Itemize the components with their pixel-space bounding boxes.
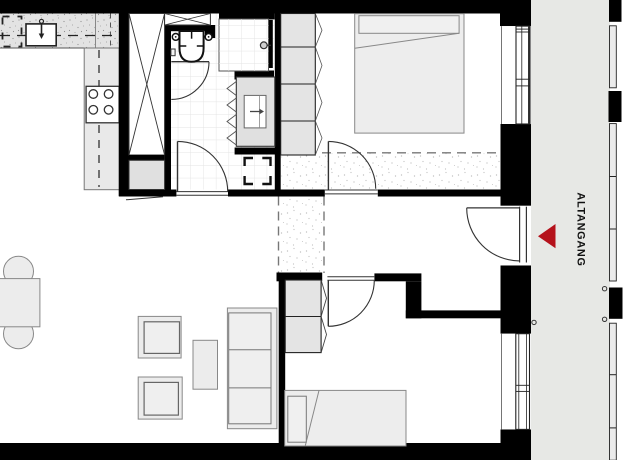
- svg-text:ALTANGANG: ALTANGANG: [575, 192, 587, 266]
